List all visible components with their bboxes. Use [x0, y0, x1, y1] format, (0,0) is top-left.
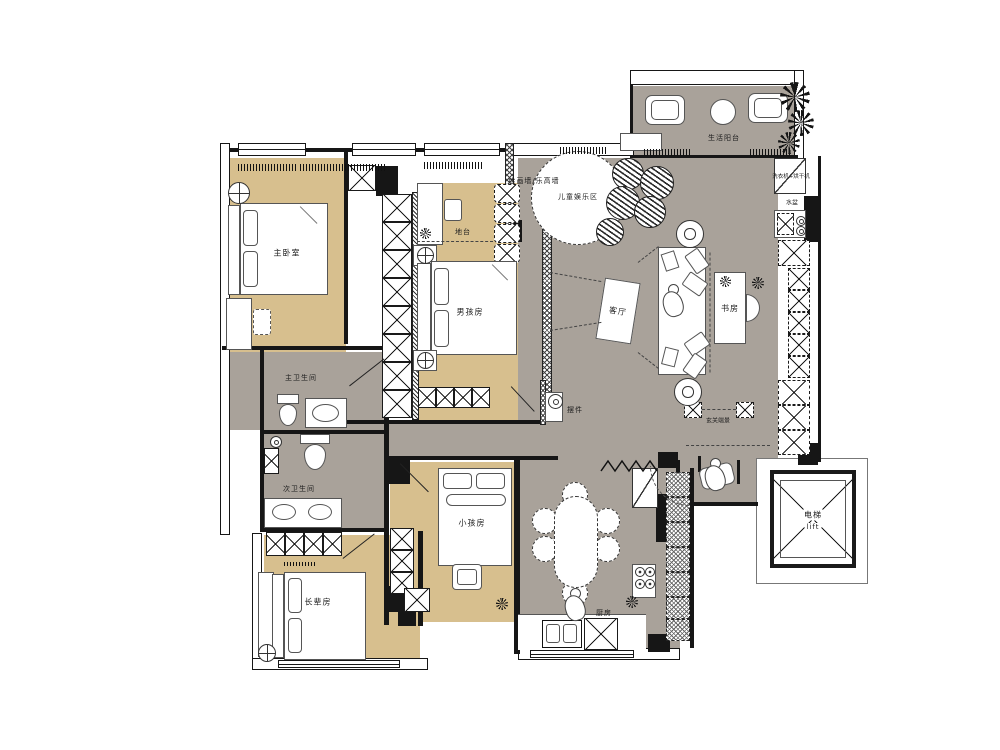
label-master-bath: 主卫生间: [285, 373, 317, 383]
wardrobe-cabinet: [323, 532, 342, 556]
window: [352, 143, 416, 156]
label-entry-view: 玄关端景: [706, 416, 730, 425]
platform-edge: [417, 241, 493, 242]
pillow: [434, 310, 449, 347]
entry-view-line: [702, 409, 736, 410]
desk: [226, 298, 252, 350]
ornament-icon: [548, 394, 563, 409]
dim-marks: [238, 164, 298, 171]
cabinet: [788, 356, 810, 378]
drain-icon: [270, 436, 282, 448]
cabinet: [788, 334, 810, 356]
kitchen-counter: [518, 614, 646, 650]
kitchen-right-wall: [690, 468, 694, 648]
tap-icon: [796, 216, 806, 226]
toilet-tank: [277, 394, 299, 404]
pillow: [443, 473, 472, 489]
wardrobe-cabinet: [266, 532, 285, 556]
label-study: 书房: [721, 303, 739, 314]
cabinet: [788, 268, 810, 290]
pouf: [640, 166, 674, 200]
right-exterior-wall: [818, 156, 821, 462]
sink: [272, 504, 296, 520]
label-washer-dryer: 洗衣机+烘干机: [772, 172, 810, 180]
round-table: [710, 99, 736, 125]
label-platform: 地台: [455, 227, 471, 237]
plant-icon: [778, 132, 800, 154]
bolster: [446, 494, 506, 506]
kids-top-wall: [440, 456, 545, 460]
cabinet: [788, 312, 810, 334]
wardrobe-cabinet: [472, 387, 490, 408]
dim-marks: [424, 162, 482, 169]
label-boys-room: 男孩房: [457, 307, 484, 318]
chair-cushion: [457, 569, 477, 585]
wardrobe-cabinet: [418, 387, 436, 408]
label-second-bath: 次卫生间: [283, 484, 315, 494]
label-ornament: 摆件: [567, 405, 583, 415]
label-master-bedroom: 主卧室: [274, 248, 301, 259]
cabinet: [788, 290, 810, 312]
light-icon: [720, 276, 731, 287]
chair-cushion: [754, 98, 782, 118]
wardrobe-cabinet: [436, 387, 454, 408]
lamp-icon: [417, 352, 434, 369]
wardrobe-cabinet: [382, 222, 412, 250]
entry-bottom-wall: [678, 502, 758, 506]
cabinet: [778, 405, 810, 430]
dim-marks: [300, 164, 386, 171]
storage-box: [494, 184, 520, 203]
pillow: [288, 618, 302, 653]
entry-view-cabinet: [736, 402, 754, 418]
pillow: [434, 268, 449, 305]
label-elders-room: 长辈房: [305, 597, 332, 608]
wardrobe-cabinet: [382, 390, 412, 418]
burner-icon: [635, 567, 645, 577]
shower-fixture: [264, 448, 279, 474]
label-living-room: 客厅: [608, 304, 627, 318]
wardrobe-cabinet: [382, 278, 412, 306]
dining-table: [554, 496, 598, 588]
pillow: [243, 251, 258, 287]
wardrobe-cabinet: [382, 250, 412, 278]
bed-headboard: [417, 263, 431, 353]
burner-icon: [645, 567, 655, 577]
table-rail: [710, 253, 711, 373]
burner-icon: [635, 579, 645, 589]
tall-cabinet: [666, 619, 690, 641]
wardrobe-cabinet: [454, 387, 472, 408]
wardrobe-cabinet: [304, 532, 323, 556]
wardrobe-cabinet: [382, 306, 412, 334]
corridor-top-wall: [346, 420, 546, 424]
ceiling-light-icon: [228, 182, 250, 204]
cabinet: [404, 588, 430, 612]
label-basin: 水盆: [786, 198, 798, 207]
tall-cabinet: [666, 597, 690, 619]
window: [424, 143, 500, 156]
tap-icon: [796, 226, 806, 236]
wardrobe-cabinet: [382, 334, 412, 362]
ceiling-speaker-icon: [674, 378, 702, 406]
label-kitchen: 厨房: [596, 608, 612, 618]
label-paint-wall: 绘画墙/乐高墙: [508, 176, 559, 186]
wardrobe-cabinet: [285, 532, 304, 556]
lamp-icon: [417, 247, 434, 264]
entry-post: [737, 460, 740, 484]
light-icon: [752, 277, 764, 289]
sink-basin: [546, 624, 560, 643]
wardrobe-cabinet: [390, 528, 414, 550]
tiny-annotation: [284, 562, 316, 566]
label-kids-room: 小孩房: [459, 518, 486, 529]
plant-icon: [780, 82, 810, 112]
sink-basin: [563, 624, 577, 643]
light-icon: [626, 596, 638, 608]
column: [804, 196, 818, 242]
column: [398, 610, 416, 626]
burner-icon: [645, 579, 655, 589]
ceiling-speaker-icon: [676, 220, 704, 248]
tall-cabinet: [666, 522, 690, 547]
wardrobe-cabinet: [382, 194, 412, 222]
corridor-floor: [348, 424, 556, 457]
basin-icon: [777, 213, 794, 235]
floor-plan: 主卧室 地台 男孩房 绘画墙/乐高墙 儿童娱乐区 客厅 书房: [0, 0, 1000, 750]
storage-box: [494, 224, 520, 243]
balcony-top-wall: [630, 70, 802, 85]
wardrobe-cabinet: [390, 550, 414, 572]
wardrobe-cabinet: [382, 362, 412, 390]
window: [278, 660, 400, 668]
label-balcony: 生活阳台: [708, 133, 740, 143]
bed-headboard: [228, 205, 240, 295]
light-icon: [258, 644, 276, 662]
light-icon: [496, 598, 508, 610]
label-elevator-en: lift: [805, 523, 822, 531]
window: [530, 650, 634, 658]
desk-chair: [444, 199, 462, 221]
pouf: [596, 218, 624, 246]
bath-wall: [260, 350, 264, 434]
tall-cabinet: [666, 547, 690, 572]
label-play-area: 儿童娱乐区: [558, 192, 598, 202]
tall-cabinet: [666, 572, 690, 597]
pillow: [288, 578, 302, 613]
window: [238, 143, 306, 156]
cabinet: [778, 240, 810, 266]
label-elevator: 电梯: [802, 510, 824, 521]
cabinet: [778, 430, 810, 455]
light-icon: [420, 228, 431, 239]
pillow: [476, 473, 505, 489]
entry-ceiling-line: [686, 445, 770, 446]
chair-cushion: [651, 100, 679, 120]
toilet-tank: [300, 434, 330, 444]
dim-marks: [560, 147, 606, 154]
cabinet: [778, 380, 810, 405]
pouf: [634, 196, 666, 228]
bed-headboard: [272, 574, 284, 658]
sink: [312, 404, 339, 422]
dim-marks: [644, 149, 692, 156]
desk-chair: [253, 309, 271, 335]
storage-box: [494, 204, 520, 223]
pillow: [243, 210, 258, 246]
dishwasher: [584, 618, 618, 650]
sink: [308, 504, 332, 520]
